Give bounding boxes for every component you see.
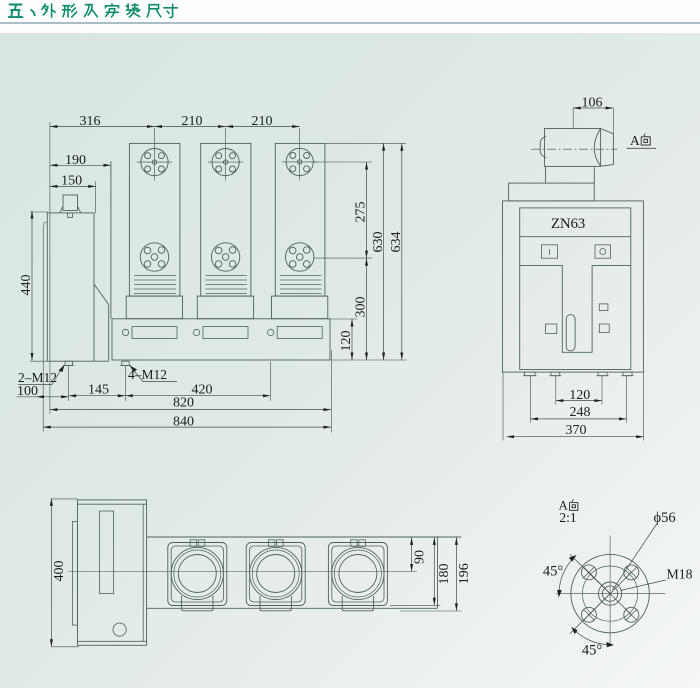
svg-text:440: 440	[19, 275, 34, 296]
svg-text:400: 400	[52, 561, 67, 582]
svg-text:630: 630	[371, 232, 386, 253]
svg-text:190: 190	[65, 153, 86, 168]
svg-text:210: 210	[252, 114, 273, 129]
svg-text:2:1: 2:1	[559, 510, 576, 525]
svg-text:145: 145	[88, 383, 109, 398]
svg-text:300: 300	[354, 297, 369, 318]
svg-text:248: 248	[570, 405, 591, 420]
svg-text:M18: M18	[667, 566, 693, 581]
svg-text:150: 150	[61, 174, 82, 189]
svg-text:840: 840	[173, 415, 194, 430]
svg-text:420: 420	[192, 383, 213, 398]
svg-text:196: 196	[457, 563, 472, 584]
svg-text:120: 120	[569, 388, 590, 403]
svg-text:634: 634	[389, 232, 404, 253]
svg-text:275: 275	[354, 202, 369, 223]
svg-text:316: 316	[80, 114, 101, 129]
svg-text:ZN63: ZN63	[551, 216, 585, 232]
svg-text:90: 90	[413, 550, 428, 564]
svg-text:100: 100	[17, 384, 38, 399]
svg-text:120: 120	[339, 331, 354, 352]
svg-text:210: 210	[182, 114, 203, 129]
svg-text:820: 820	[173, 396, 194, 411]
svg-text:A: A	[630, 133, 640, 148]
svg-text:106: 106	[582, 96, 603, 111]
svg-text:45°: 45°	[582, 642, 603, 658]
svg-text:2–M12: 2–M12	[18, 370, 57, 385]
svg-text:45°: 45°	[543, 563, 564, 579]
svg-text:370: 370	[566, 423, 587, 438]
svg-text:180: 180	[437, 564, 452, 585]
